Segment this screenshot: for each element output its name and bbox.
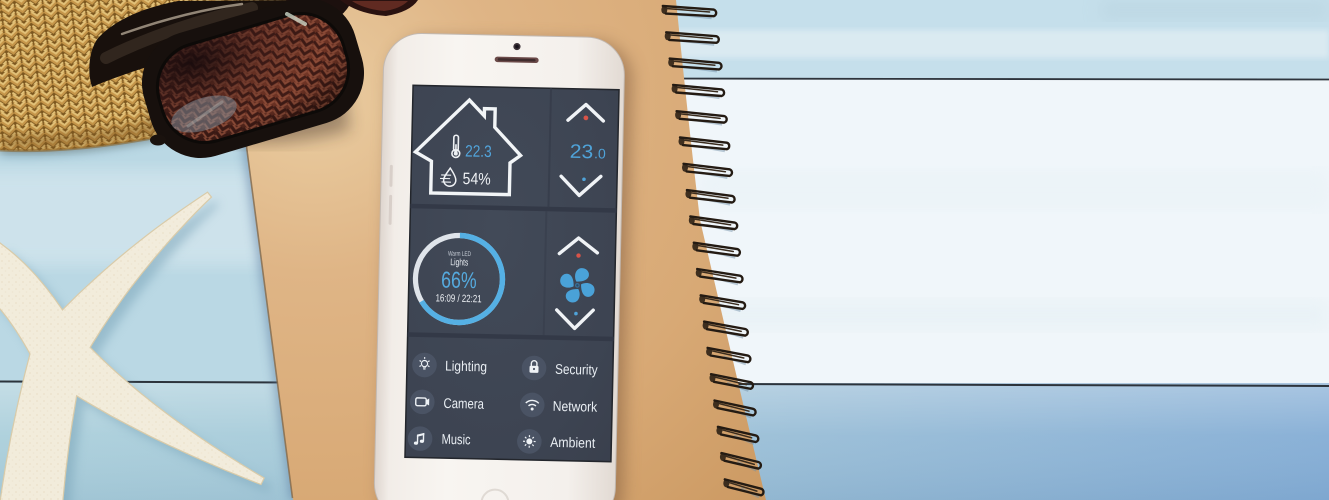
svg-text:.0: .0 bbox=[594, 145, 606, 161]
svg-text:Security: Security bbox=[555, 361, 598, 378]
svg-text:Music: Music bbox=[441, 431, 470, 448]
svg-text:Lighting: Lighting bbox=[445, 358, 487, 375]
svg-text:22.3: 22.3 bbox=[465, 142, 492, 161]
svg-text:54%: 54% bbox=[462, 170, 491, 189]
svg-text:Network: Network bbox=[553, 398, 599, 415]
svg-text:23: 23 bbox=[570, 141, 594, 164]
svg-text:66%: 66% bbox=[441, 266, 477, 293]
svg-text:Ambient: Ambient bbox=[550, 434, 595, 451]
svg-text:16:09 / 22:21: 16:09 / 22:21 bbox=[435, 292, 481, 305]
svg-text:Camera: Camera bbox=[443, 395, 484, 412]
